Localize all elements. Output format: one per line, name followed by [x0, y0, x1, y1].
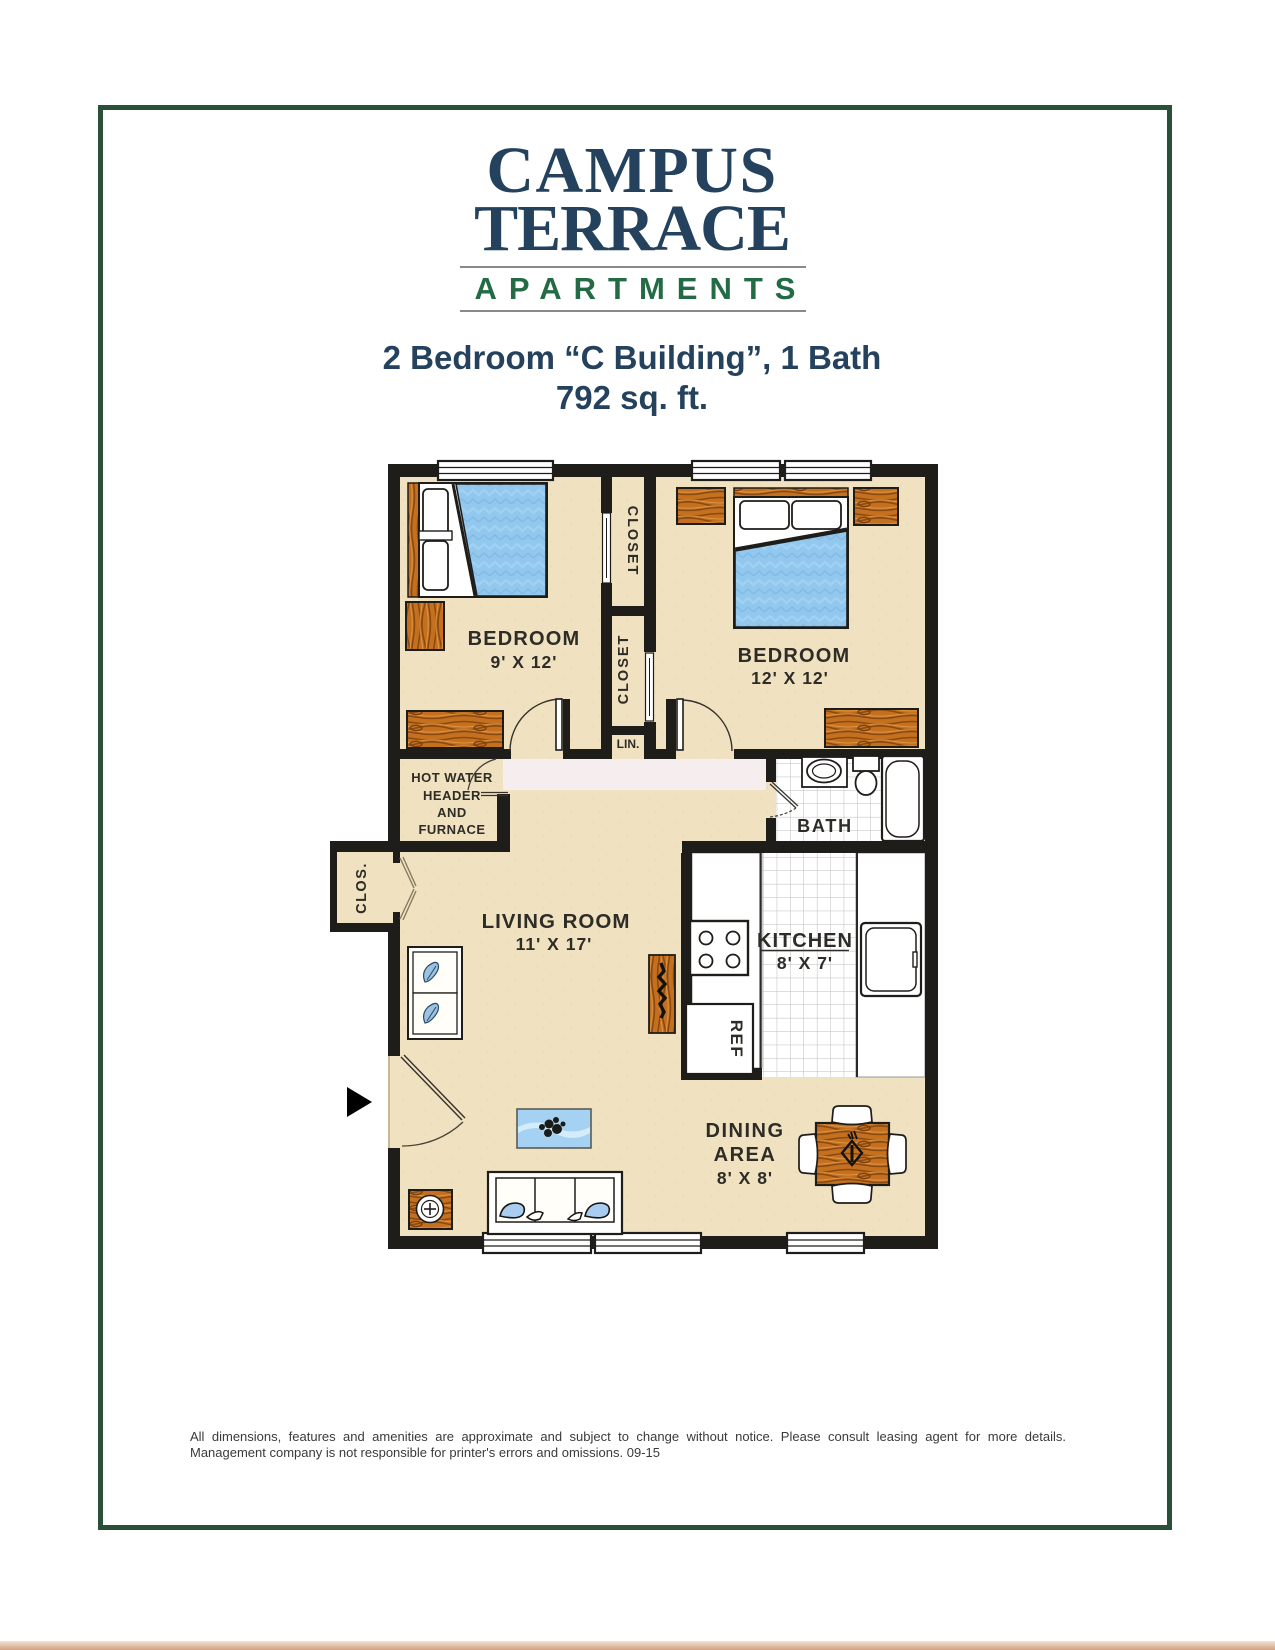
svg-text:12' X 12': 12' X 12'	[751, 668, 829, 688]
svg-text:8' X 7': 8' X 7'	[777, 953, 833, 973]
svg-text:FURNACE: FURNACE	[418, 822, 485, 837]
svg-text:REF: REF	[727, 1020, 746, 1059]
svg-text:HOT WATER: HOT WATER	[411, 770, 493, 785]
svg-text:BATH: BATH	[797, 816, 853, 836]
svg-text:8' X 8': 8' X 8'	[717, 1168, 773, 1188]
svg-text:11' X 17': 11' X 17'	[516, 934, 593, 954]
svg-text:DINING: DINING	[706, 1120, 785, 1142]
svg-text:LIVING ROOM: LIVING ROOM	[482, 910, 631, 933]
svg-text:CLOSET: CLOSET	[624, 506, 640, 577]
svg-text:AND: AND	[437, 805, 467, 820]
svg-text:KITCHEN: KITCHEN	[757, 930, 853, 952]
svg-text:HEADER: HEADER	[423, 788, 481, 803]
svg-text:BEDROOM: BEDROOM	[468, 628, 581, 650]
svg-text:BEDROOM: BEDROOM	[738, 645, 851, 667]
svg-text:CLOSET: CLOSET	[616, 634, 632, 705]
svg-text:9' X 12': 9' X 12'	[491, 652, 558, 672]
svg-text:AREA: AREA	[714, 1144, 777, 1166]
svg-text:LIN.: LIN.	[617, 737, 640, 751]
svg-text:CLOS.: CLOS.	[354, 862, 370, 914]
